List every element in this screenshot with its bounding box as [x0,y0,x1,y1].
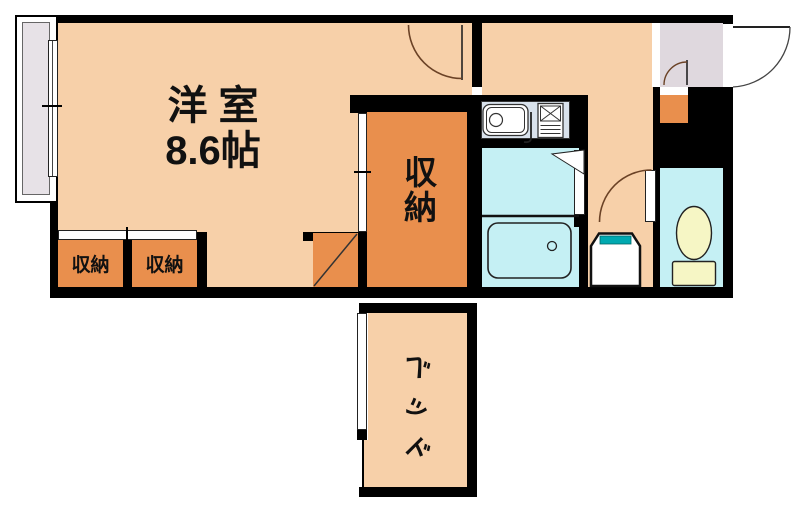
bathroom-door [574,150,585,215]
main-room-label: 洋 室 8.6帖 [108,84,318,174]
storage-label: 収納 [402,156,439,225]
bathroom [482,148,579,287]
kitchen-counter [481,101,570,139]
closet-right: 収納 [132,240,197,287]
entrance-sliver [660,87,688,95]
bed-window-post [357,430,367,440]
closet-left: 収納 [58,240,123,287]
window-main-room [48,40,58,177]
wall-stub [303,232,313,241]
window-center-line [52,41,53,176]
bed-left-line [362,440,364,487]
front-door-opening [723,24,733,87]
storage-door-tick [354,171,371,173]
entrance-genkan [660,23,723,87]
entrance-step-strip [652,23,660,87]
shoe-box [660,95,688,123]
balcony-deck [22,22,50,195]
bed-window [357,313,367,430]
door-threshold [472,87,482,95]
room-main-lower-strip [207,232,313,287]
front-door-swing-arc [733,27,790,87]
bed-wall-bottom [359,487,477,497]
corridor-top [482,23,653,95]
hallway [588,95,653,287]
floorplan: 収納 収納 収納 ベッド [0,0,800,509]
wall-stub [574,215,585,227]
toilet-room [660,168,723,287]
toilet-door [645,170,656,222]
closet-right-label: 収納 [145,250,183,277]
closet-left-label: 収納 [71,250,109,277]
closet-door-tick [126,227,128,243]
main-room-name: 洋 室 [108,84,318,129]
bed-wall-right [467,303,477,497]
bed-area-sliver [364,440,368,487]
bed-wall-top [359,303,477,313]
window-tick [42,105,62,107]
main-room-size: 8.6帖 [108,129,318,174]
bed-label: ベッド [401,344,433,470]
diagonal-square [313,233,358,287]
wall-stub [350,95,361,113]
